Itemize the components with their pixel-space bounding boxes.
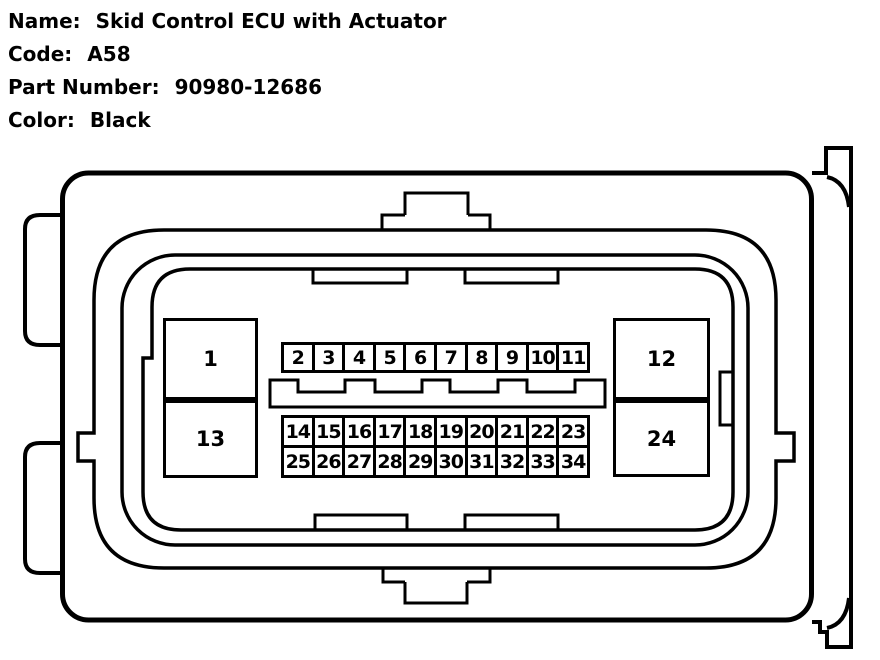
pin-row-bottom: 25262728293031323334 <box>284 448 587 475</box>
pin-cell: 25 <box>284 448 312 475</box>
pin-cell: 26 <box>312 448 343 475</box>
pin-cell: 22 <box>526 418 557 445</box>
pin-cell: 14 <box>284 418 312 445</box>
pin-cell: 4 <box>342 345 373 370</box>
pin-cell: 10 <box>526 345 557 370</box>
left-mount-tab-lower <box>25 443 64 573</box>
pin-cell: 32 <box>495 448 526 475</box>
pin-cell: 15 <box>312 418 343 445</box>
pin-cell: 23 <box>556 418 587 445</box>
pin-cell: 17 <box>373 418 404 445</box>
pin-cell: 11 <box>556 345 587 370</box>
left-mount-tab-upper <box>25 215 64 345</box>
page: Name: Skid Control ECU with Actuator Cod… <box>0 0 880 660</box>
pin-cell: 27 <box>342 448 373 475</box>
pin-cell: 18 <box>403 418 434 445</box>
pin-cell: 2 <box>284 345 312 370</box>
pin-row-top: 234567891011 <box>281 342 590 373</box>
side-lock-rail <box>812 148 851 647</box>
pin-cell: 33 <box>526 448 557 475</box>
pin-cell: 7 <box>434 345 465 370</box>
pin-cell: 9 <box>495 345 526 370</box>
pin-row-middle: 14151617181920212223 <box>284 418 587 448</box>
pin-cell: 19 <box>434 418 465 445</box>
pin-box-24: 24 <box>613 400 710 477</box>
pin-cell: 34 <box>556 448 587 475</box>
pin-cell: 16 <box>342 418 373 445</box>
pin-cell: 6 <box>403 345 434 370</box>
pin-cell: 31 <box>465 448 496 475</box>
pin-cell: 21 <box>495 418 526 445</box>
pin-cell: 28 <box>373 448 404 475</box>
pin-box-13: 13 <box>163 400 258 478</box>
pin-cell: 20 <box>465 418 496 445</box>
pin-box-12: 12 <box>613 318 710 400</box>
pin-grid: 14151617181920212223 2526272829303132333… <box>281 415 590 478</box>
side-lock-rail-bottom-curve <box>827 598 849 628</box>
pin-box-1: 1 <box>163 318 258 400</box>
pin-cell: 8 <box>465 345 496 370</box>
pin-cell: 30 <box>434 448 465 475</box>
connector-diagram <box>0 0 880 660</box>
pin-cell: 5 <box>373 345 404 370</box>
side-lock-rail-top-curve <box>827 177 849 207</box>
pin-cell: 29 <box>403 448 434 475</box>
pin-cell: 3 <box>312 345 343 370</box>
